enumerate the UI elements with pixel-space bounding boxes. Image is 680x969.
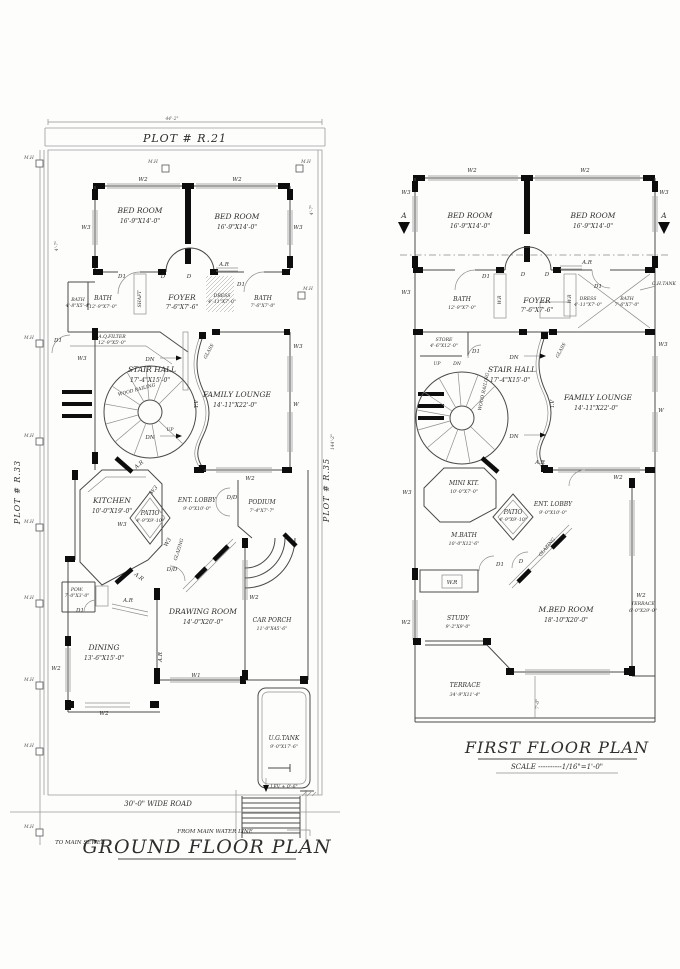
f-patio-dim: 4'-9"X9'-10" <box>498 517 527 523</box>
dn-label: DN <box>452 361 462 367</box>
room-kitchen-name: KITCHEN <box>92 496 131 505</box>
mh-label: M.H <box>23 156 34 161</box>
first-floor-plan: BED ROOM 16'-9"X14'-0" BED ROOM 16'-9"X1… <box>398 168 677 773</box>
f-patio-name: PATIO <box>503 509 523 516</box>
room-podium-dim: 7'-4"X7'-7" <box>250 508 275 514</box>
room-drawing-name: DRAWING ROOM <box>168 607 237 616</box>
d-label: D <box>518 559 524 565</box>
ground-floor-plan: 44'-2" PLOT # R.21 PLOT # R.33 PLOT # R.… <box>10 117 340 859</box>
wood-railing-label: WOOD RAILING <box>117 382 156 398</box>
w3-label: W3 <box>402 490 412 496</box>
w3-label: W3 <box>77 356 87 362</box>
f-bath1-dim: 12'-9"X7'-0" <box>448 305 476 311</box>
w2-label: W2 <box>245 476 255 482</box>
w1-label: W1 <box>191 673 200 679</box>
wr-label: W.R <box>447 580 458 586</box>
w3-label: W3 <box>293 344 303 350</box>
w2-label: W2 <box>138 177 148 183</box>
room-lobby-name: ENT. LOBBY <box>177 497 217 504</box>
room-lounge-name: FAMILY LOUNGE <box>202 390 271 399</box>
mh-label: M.H <box>23 678 34 683</box>
first-title-block: FIRST FLOOR PLAN SCALE ----------1/16"=1… <box>464 738 649 773</box>
mh-label: M.H <box>23 434 34 439</box>
w3-label: W3 <box>401 290 411 296</box>
dn-label: DN <box>508 355 518 361</box>
dim-corner-right: 4'-7" <box>310 205 315 216</box>
d1-label: D1 <box>495 562 504 568</box>
f-terrbot-dim: 34'-9"X11'-4" <box>450 692 481 698</box>
f-minikit-dim: 10'-0"X7'-0" <box>450 489 478 495</box>
ground-bottom-annotations: 30'-0" WIDE ROAD FROM MAIN WATER LINE TO… <box>55 800 332 859</box>
w3-label: W3 <box>293 225 303 231</box>
glass-label: GLASS <box>555 342 568 359</box>
dim-corner-left: 4'-7" <box>55 241 60 252</box>
room-bathsm-dim: 4'-8"X5'-4" <box>65 303 91 309</box>
d-label: D <box>160 274 166 280</box>
scale-label: SCALE ----------1/16"=1'-0" <box>511 763 603 771</box>
room-dining-dim: 13'-6"X15'-0" <box>84 655 124 662</box>
w3-label: W3 <box>81 225 91 231</box>
room-bathsm-name: BATH <box>70 297 86 303</box>
ground-tank-steps <box>10 688 340 840</box>
w2-label: W2 <box>51 666 61 672</box>
w2-label: W2 <box>580 168 590 174</box>
room-dress-dim: 4'-11"X7'-0" <box>207 299 236 305</box>
f-lobby-name: ENT. LOBBY <box>533 501 573 508</box>
f-lounge-dim: 14'-11"X22'-0" <box>574 405 618 412</box>
d1-label: D1 <box>75 608 84 614</box>
w3-label: W3 <box>659 190 669 196</box>
dim-top: 44'-2" <box>164 117 178 122</box>
w2-label: W2 <box>401 620 411 626</box>
room-lounge-dim: 14'-11"X22'-0" <box>213 402 257 409</box>
mh-label: M.H <box>147 160 158 165</box>
f-bath1-name: BATH <box>452 296 471 303</box>
room-patio-dim: 4'-9"X9'-10" <box>135 518 164 524</box>
w2-label: W2 <box>467 168 477 174</box>
f-mbed-dim: 18'-10"X20'-0" <box>544 617 588 624</box>
plot-label-left: PLOT # R.33 <box>13 460 22 525</box>
manholes: M.H M.H M.H M.H M.H M.H M.H M.H M.H M.H … <box>23 156 313 836</box>
f-bed1-dim: 16'-9"X14'-0" <box>450 223 490 230</box>
f-bath2-dim: 7'-6"X7'-0" <box>615 302 640 308</box>
room-bed2-dim: 16'-9"X14'-0" <box>217 224 257 231</box>
mh-label: M.H <box>302 287 313 292</box>
first-floor-title: FIRST FLOOR PLAN <box>464 738 649 757</box>
up-label: UP <box>434 361 442 367</box>
room-kitchen-dim: 10'-0"X19'-0" <box>92 508 132 515</box>
room-bed1-dim: 16'-9"X14'-0" <box>120 218 160 225</box>
section-a-left: A <box>400 211 407 220</box>
f-bed1-name: BED ROOM <box>446 211 492 220</box>
tv-label: T.V <box>550 399 556 409</box>
room-porch-dim: 11'-0"X45'-6" <box>257 626 288 632</box>
room-pow-name: POW. <box>70 587 84 593</box>
water-line-label: FROM MAIN WATER LINE <box>176 829 252 835</box>
f-terrside-dim: 6'-0"X29'-0" <box>629 608 657 614</box>
room-porch-name: CAR PORCH <box>253 617 292 624</box>
ar-label: A.R <box>534 460 545 466</box>
mh-label: M.H <box>23 825 34 830</box>
floor-plan-sheet: 44'-2" PLOT # R.21 PLOT # R.33 PLOT # R.… <box>0 0 680 969</box>
ar-label: A.R <box>122 598 133 604</box>
architectural-drawing: 44'-2" PLOT # R.21 PLOT # R.33 PLOT # R.… <box>0 0 680 969</box>
d1-label: D1 <box>471 349 480 355</box>
first-walls <box>398 175 670 722</box>
ar-label: A.R <box>158 652 164 663</box>
f-terrbot-name: TERRACE <box>450 682 481 689</box>
room-drawing-dim: 14'-0"X20'-0" <box>183 619 223 626</box>
room-dress-name: DRESS <box>213 293 231 299</box>
dn-label: DN <box>508 434 518 440</box>
room-filter-dim: 12'-9"X5'-0" <box>98 340 126 346</box>
f-bed2-name: BED ROOM <box>569 211 615 220</box>
f-stair-name: STAIR HALL <box>488 365 536 374</box>
w3-label: W3 <box>401 190 411 196</box>
ar-label: A.R <box>132 571 144 582</box>
w3-label: W3 <box>149 485 160 496</box>
ar-label: A.R <box>218 262 229 268</box>
w-label: W <box>293 402 300 408</box>
room-stair-dim: 17'-4"X15'-0" <box>130 377 170 384</box>
d1-label: D1 <box>236 282 245 288</box>
mh-label: M.H <box>23 336 34 341</box>
f-bath2-name: BATH <box>619 296 635 302</box>
f-store-dim: 4'-6"X12'-0" <box>429 343 458 349</box>
room-bath1-name: BATH <box>93 295 112 302</box>
tv-label: T.V <box>194 399 200 409</box>
f-stair-dim: 17'-4"X15'-0" <box>490 377 530 384</box>
dn-label: DN <box>144 357 154 363</box>
f-minikit-name: MINI KIT. <box>448 480 479 487</box>
room-foyer-dim: 7'-6"X7'-6" <box>166 304 199 311</box>
f-mbath-name: M.BATH <box>450 532 477 539</box>
lev-label: LEV + 0'-6" <box>269 784 297 790</box>
glass-label: GLASS <box>203 343 216 360</box>
glazing-label: GLAZING <box>173 538 186 562</box>
f-store-name: STORE <box>436 337 453 343</box>
d-label: D <box>186 274 192 280</box>
section-a-right: A <box>660 211 667 220</box>
room-filter-name: A.Q.FILTER <box>97 334 126 340</box>
room-bed2-name: BED ROOM <box>213 212 259 221</box>
f-dress-dim: 4'-11"X7'-0" <box>573 302 602 308</box>
f-bottom-dim: 7'-0" <box>536 699 541 709</box>
w-label: W <box>658 408 665 414</box>
dim-side: 144'-2" <box>331 434 336 450</box>
w3-label: W3 <box>658 342 668 348</box>
f-terrside-name: TERRACE <box>631 601 655 607</box>
w3-label: W3 <box>117 522 127 528</box>
first-lower-walls <box>412 458 655 722</box>
room-foyer-name: FOYER <box>167 293 196 302</box>
dd-label: D/D <box>166 567 178 573</box>
w2-label: W2 <box>636 593 646 599</box>
room-bath2-name: BATH <box>253 295 272 302</box>
room-bed1-name: BED ROOM <box>116 206 162 215</box>
mh-label: M.H <box>23 596 34 601</box>
road-label: 30'-0" WIDE ROAD <box>124 800 192 808</box>
d-label: D <box>520 272 526 278</box>
room-tank-name: U.G.TANK <box>269 735 300 742</box>
room-dining-name: DINING <box>87 643 119 652</box>
wr-label: W.R <box>567 294 573 303</box>
room-tank-dim: 9'-0"X17'-6" <box>270 744 298 750</box>
f-mbed-name: M.BED ROOM <box>537 605 593 614</box>
mh-label: M.H <box>300 160 311 165</box>
ar-label: A.R <box>581 260 592 266</box>
d1-label: D1 <box>481 274 490 280</box>
dd-label: D/D <box>226 495 238 501</box>
ohtank-label: O.H.TANK <box>652 281 677 287</box>
room-bath2-dim: 7'-6"X7'-0" <box>251 303 276 309</box>
room-patio-name: PATIO <box>140 510 160 517</box>
room-podium-name: PODIUM <box>247 499 276 506</box>
f-bed2-dim: 16'-9"X14'-0" <box>573 223 613 230</box>
dn-label: DN <box>144 435 154 441</box>
w2-label: W2 <box>232 177 242 183</box>
room-lobby-dim: 9'-0"X10'-0" <box>183 506 211 512</box>
f-study-dim: 9'-2"X9'-0" <box>446 624 471 630</box>
plot-label-right: PLOT # R.35 <box>322 458 331 523</box>
mh-label: M.H <box>23 520 34 525</box>
w3-label: W3 <box>163 537 173 548</box>
ground-kitchen-area <box>80 458 296 592</box>
plot-label-top: PLOT # R.21 <box>142 132 227 145</box>
w2-label: W2 <box>613 475 623 481</box>
room-bath1-dim: 12'-9"X7'-0" <box>89 304 117 310</box>
f-foyer-name: FOYER <box>522 296 551 305</box>
room-stair-name: STAIR HALL <box>128 365 176 374</box>
f-study-name: STUDY <box>447 615 470 622</box>
d1-label: D1 <box>53 338 62 344</box>
d1-label: D1 <box>117 274 126 280</box>
w2-label: W2 <box>249 595 259 601</box>
f-foyer-dim: 7'-6"X7'-6" <box>521 307 554 314</box>
wr-label: W.R <box>497 295 503 304</box>
mh-label: M.H <box>23 744 34 749</box>
ground-labels: BED ROOM 16'-9"X14'-0" BED ROOM 16'-9"X1… <box>65 206 300 790</box>
d1-label: D1 <box>593 284 602 290</box>
f-dress-name: DRESS <box>579 296 597 302</box>
ground-floor-title: GROUND FLOOR PLAN <box>82 836 331 858</box>
w2-label: W2 <box>99 711 109 717</box>
f-lounge-name: FAMILY LOUNGE <box>563 393 632 402</box>
shaft-label: SHAFT <box>137 290 143 308</box>
f-mbath-dim: 10'-0"X12'-6" <box>449 541 480 547</box>
f-lobby-dim: 9'-0"X10'-0" <box>539 510 567 516</box>
room-pow-dim: 7'-0"X3'-0" <box>65 593 90 599</box>
d-label: D <box>544 272 550 278</box>
up-label: UP <box>167 427 175 433</box>
ground-markers: W2 W2 W2 W2 W2 W2 W3 W3 W3 W3 W3 W3 W3 W… <box>51 177 303 717</box>
